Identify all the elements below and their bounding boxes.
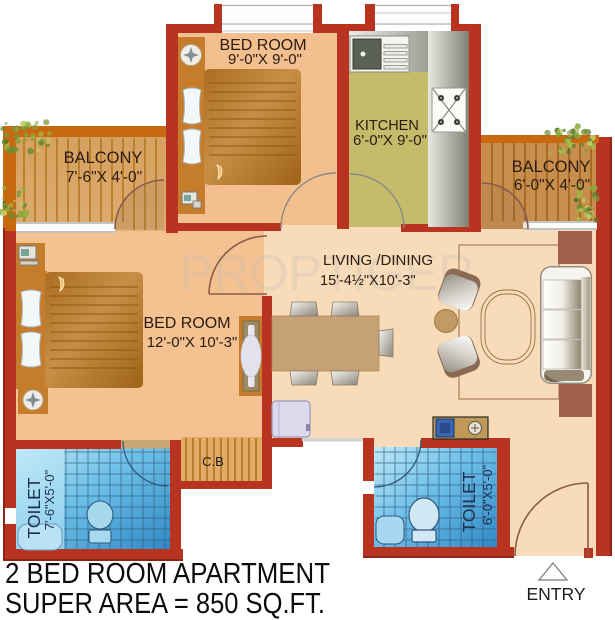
svg-text:6'-0"X5'-0": 6'-0"X5'-0" — [480, 464, 495, 525]
svg-text:7'-6"X5'-0": 7'-6"X5'-0" — [42, 469, 57, 530]
svg-text:C.B: C.B — [202, 454, 224, 469]
svg-text:BALCONY: BALCONY — [64, 149, 143, 167]
svg-text:BALCONY: BALCONY — [512, 158, 591, 176]
svg-text:SUPER AREA = 850 SQ.FT.: SUPER AREA = 850 SQ.FT. — [5, 588, 325, 620]
svg-text:12'-0"X 10'-3": 12'-0"X 10'-3" — [147, 334, 238, 351]
svg-text:6'-0"X 4'-0": 6'-0"X 4'-0" — [514, 177, 590, 194]
svg-text:TOILET: TOILET — [24, 477, 44, 538]
svg-text:15'-4½"X10'-3": 15'-4½"X10'-3" — [320, 273, 416, 289]
svg-text:LIVING /DINING: LIVING /DINING — [323, 252, 433, 269]
svg-text:ENTRY: ENTRY — [527, 584, 586, 604]
svg-text:9'-0"X 9'-0": 9'-0"X 9'-0" — [228, 51, 302, 68]
svg-text:BED ROOM: BED ROOM — [143, 315, 230, 332]
svg-text:6'-0"X 9'-0": 6'-0"X 9'-0" — [353, 132, 427, 149]
svg-text:2 BED ROOM APARTMENT: 2 BED ROOM APARTMENT — [5, 558, 330, 590]
svg-text:7'-6"X 4'-0": 7'-6"X 4'-0" — [66, 169, 142, 186]
svg-text:TOILET: TOILET — [459, 471, 479, 532]
